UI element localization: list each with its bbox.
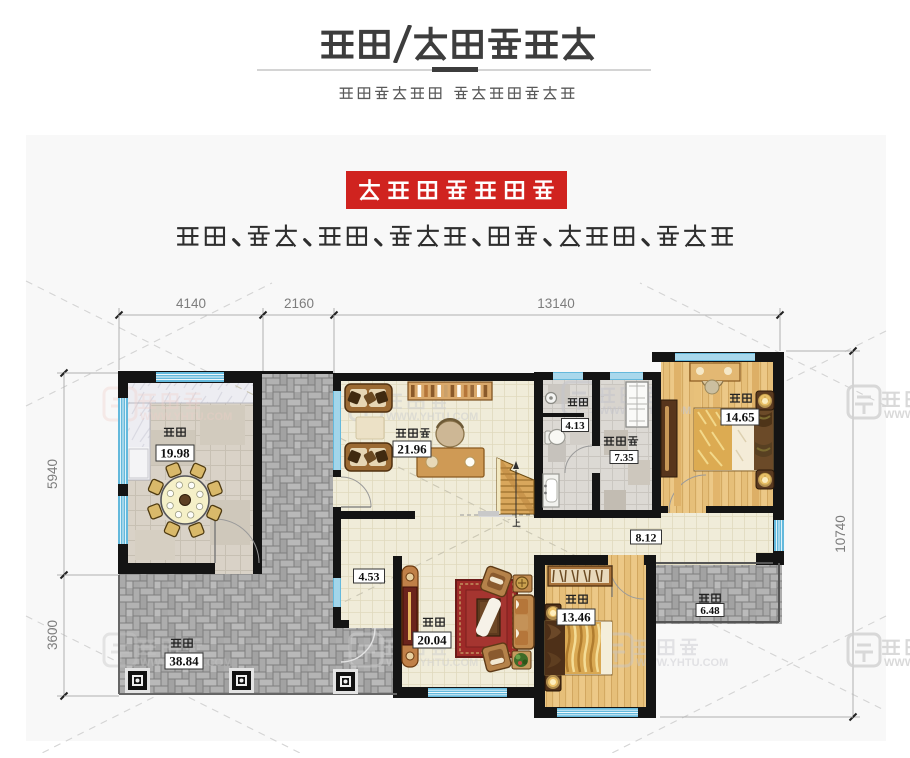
svg-text:5940: 5940 <box>45 459 60 489</box>
svg-text:WWW.YHTU.COM: WWW.YHTU.COM <box>386 411 478 423</box>
svg-text:4.53: 4.53 <box>359 569 380 583</box>
svg-text:13.46: 13.46 <box>561 610 591 625</box>
svg-text:20.04: 20.04 <box>417 633 447 648</box>
svg-text:8.12: 8.12 <box>636 530 657 544</box>
svg-text:21.96: 21.96 <box>397 442 427 457</box>
svg-text:WWW.YHTU.COM: WWW.YHTU.COM <box>884 657 910 669</box>
svg-text:14.65: 14.65 <box>725 410 755 425</box>
svg-text:7.35: 7.35 <box>614 452 634 464</box>
svg-text:19.98: 19.98 <box>160 446 190 461</box>
svg-text:13140: 13140 <box>537 296 575 311</box>
svg-text:WWW.YHTU.COM: WWW.YHTU.COM <box>884 409 910 421</box>
svg-text:3600: 3600 <box>45 620 60 650</box>
svg-text:38.84: 38.84 <box>169 654 199 669</box>
svg-text:6.48: 6.48 <box>700 605 720 617</box>
svg-text:4140: 4140 <box>176 296 206 311</box>
svg-text:10740: 10740 <box>833 515 848 553</box>
svg-text:WWW.YHTU.COM: WWW.YHTU.COM <box>140 411 232 423</box>
svg-text:4.13: 4.13 <box>565 420 585 432</box>
svg-text:2160: 2160 <box>284 296 314 311</box>
